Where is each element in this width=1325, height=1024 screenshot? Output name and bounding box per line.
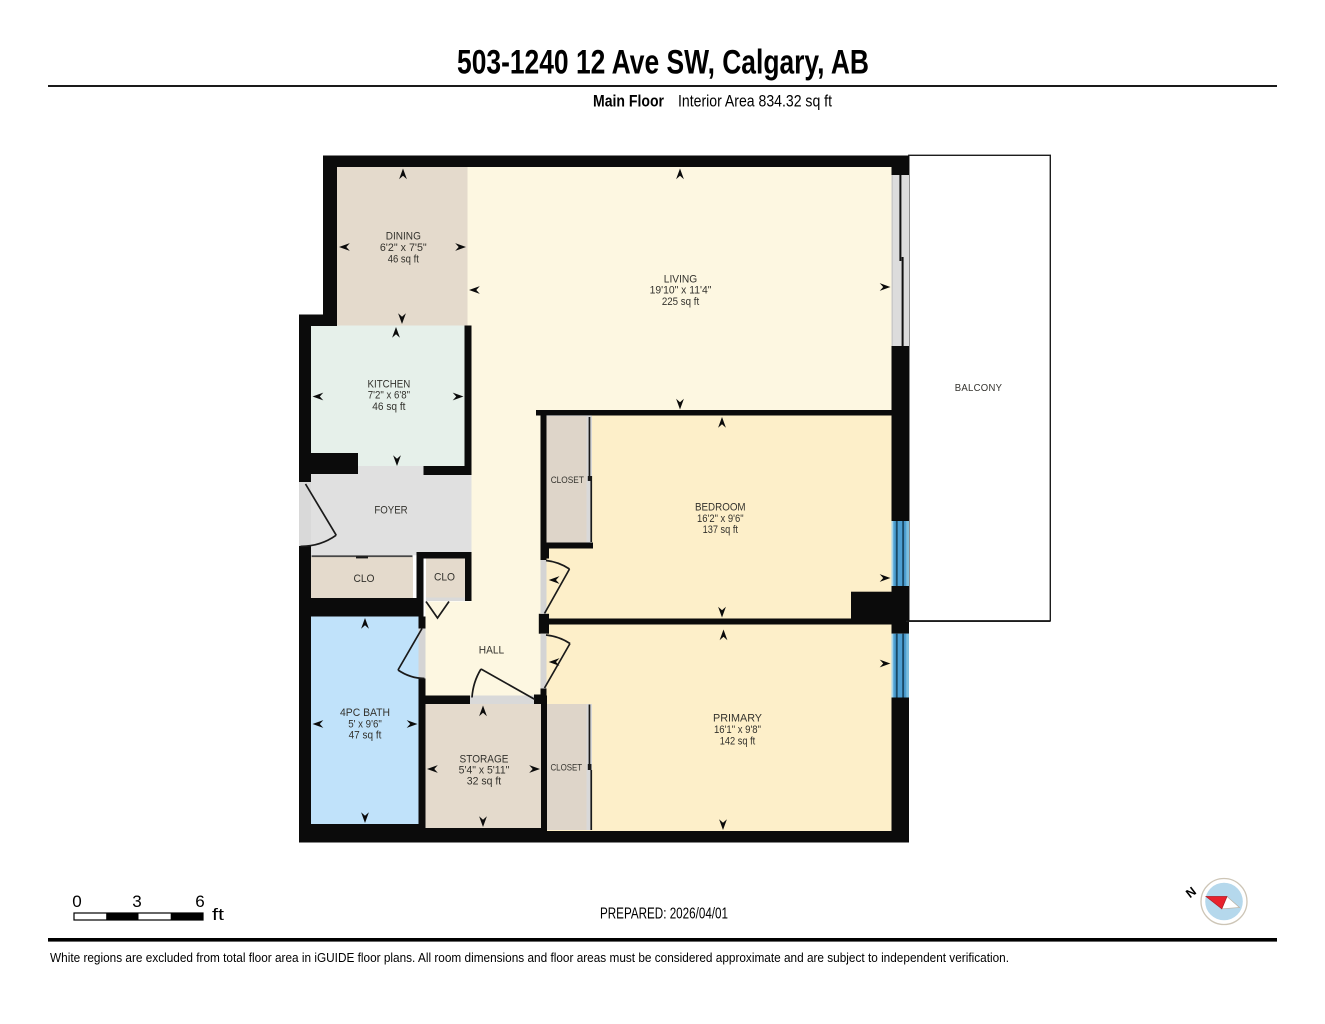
svg-text:LIVING: LIVING xyxy=(664,273,697,285)
svg-text:3: 3 xyxy=(132,892,142,911)
svg-text:0: 0 xyxy=(72,892,82,911)
svg-text:6: 6 xyxy=(195,892,205,911)
svg-text:137 sq ft: 137 sq ft xyxy=(703,524,738,536)
svg-text:White regions are excluded fro: White regions are excluded from total fl… xyxy=(50,950,1009,965)
svg-text:7'2" x 6'8": 7'2" x 6'8" xyxy=(368,390,411,402)
svg-text:16'1" x 9'8": 16'1" x 9'8" xyxy=(714,724,761,736)
svg-text:46 sq ft: 46 sq ft xyxy=(372,401,405,413)
svg-text:BALCONY: BALCONY xyxy=(955,383,1003,394)
svg-text:CLOSET: CLOSET xyxy=(551,475,584,485)
svg-text:CLO: CLO xyxy=(353,573,375,585)
svg-text:503-1240 12 Ave SW, Calgary, A: 503-1240 12 Ave SW, Calgary, AB xyxy=(457,44,869,82)
svg-text:32 sq ft: 32 sq ft xyxy=(467,776,501,788)
svg-text:142 sq ft: 142 sq ft xyxy=(720,736,756,748)
svg-text:HALL: HALL xyxy=(479,645,504,657)
svg-text:6'2" x 7'5": 6'2" x 7'5" xyxy=(380,242,427,254)
svg-text:225 sq ft: 225 sq ft xyxy=(662,296,699,308)
svg-text:46 sq ft: 46 sq ft xyxy=(388,253,419,265)
svg-text:DINING: DINING xyxy=(386,231,421,243)
svg-text:N: N xyxy=(1183,884,1199,901)
svg-text:FOYER: FOYER xyxy=(374,505,407,517)
svg-text:19'10" x 11'4": 19'10" x 11'4" xyxy=(650,285,712,297)
svg-text:Interior Area 834.32 sq ft: Interior Area 834.32 sq ft xyxy=(678,92,832,111)
svg-text:PRIMARY: PRIMARY xyxy=(713,713,763,725)
svg-text:KITCHEN: KITCHEN xyxy=(368,378,411,390)
svg-text:STORAGE: STORAGE xyxy=(460,753,509,765)
svg-text:47 sq ft: 47 sq ft xyxy=(349,729,382,741)
svg-text:Main Floor: Main Floor xyxy=(593,92,664,111)
svg-text:CLO: CLO xyxy=(434,572,456,584)
svg-text:BEDROOM: BEDROOM xyxy=(695,502,746,514)
svg-text:PREPARED: 2026/04/01: PREPARED: 2026/04/01 xyxy=(600,906,728,923)
svg-text:CLOSET: CLOSET xyxy=(550,763,582,773)
svg-text:ft: ft xyxy=(212,905,224,924)
